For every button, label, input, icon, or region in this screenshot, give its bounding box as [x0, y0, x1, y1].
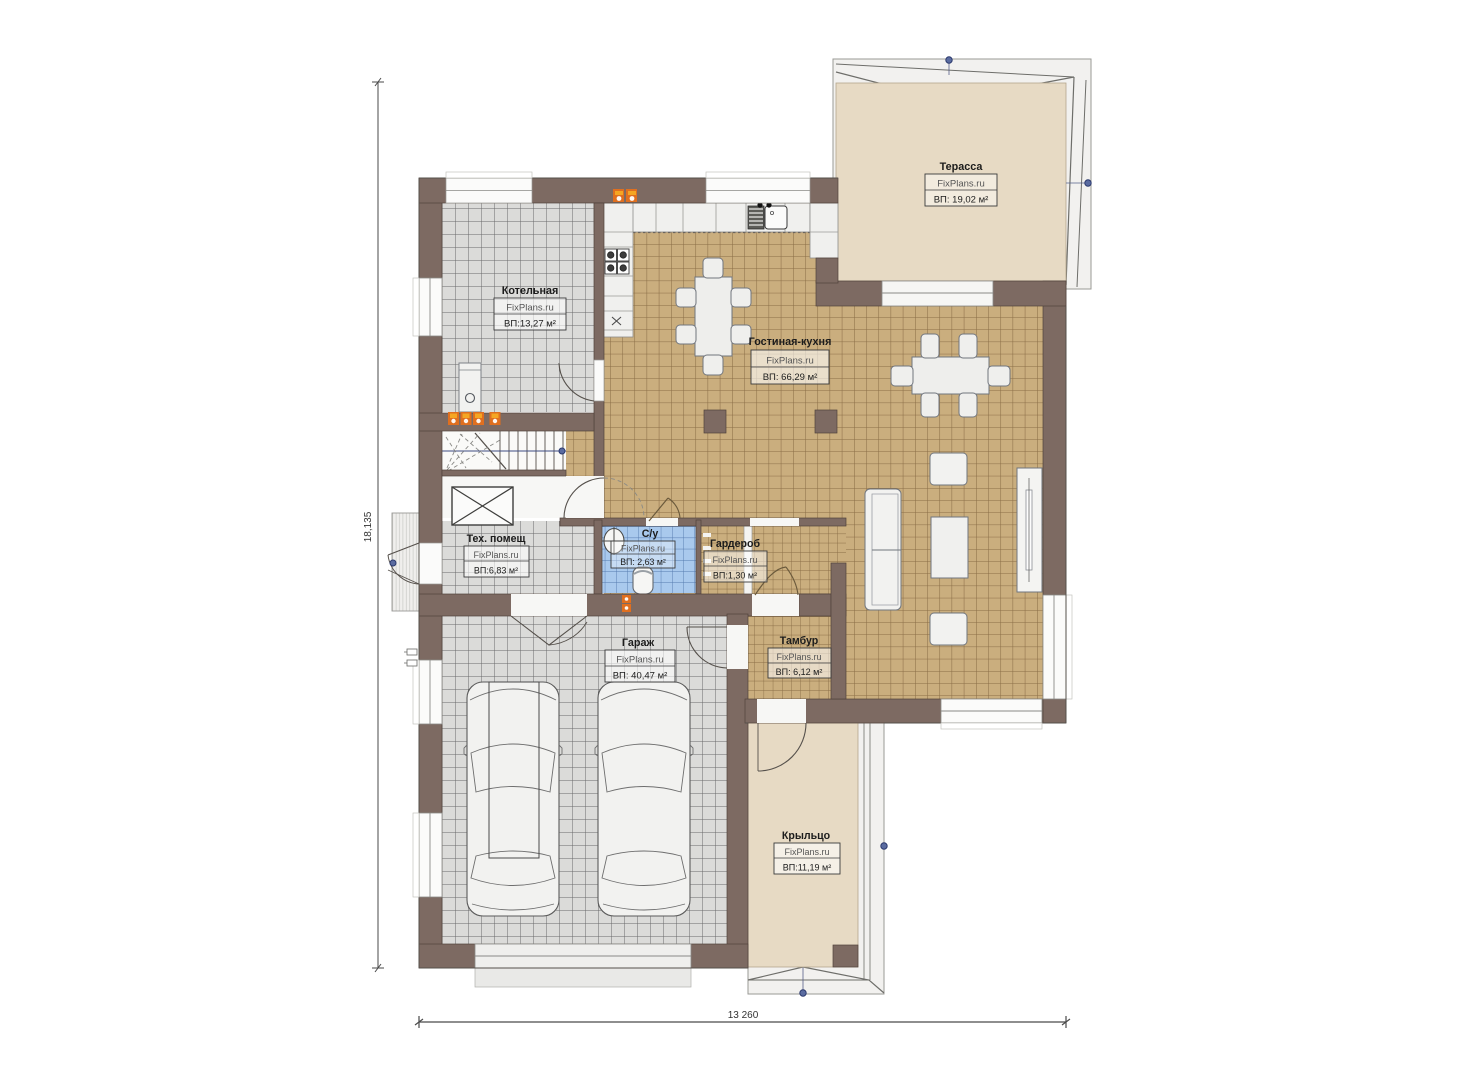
svg-text:ВП: 6,12 м²: ВП: 6,12 м²	[776, 667, 823, 677]
svg-text:ВП: 2,63 м²: ВП: 2,63 м²	[620, 557, 666, 567]
svg-text:FixPlans.ru: FixPlans.ru	[766, 356, 814, 367]
svg-text:FixPlans.ru: FixPlans.ru	[473, 550, 518, 560]
svg-text:Гостиная-кухня: Гостиная-кухня	[749, 336, 832, 348]
svg-text:FixPlans.ru: FixPlans.ru	[776, 652, 821, 662]
svg-text:FixPlans.ru: FixPlans.ru	[621, 544, 665, 554]
svg-text:FixPlans.ru: FixPlans.ru	[506, 303, 554, 314]
svg-text:ВП:6,83 м²: ВП:6,83 м²	[474, 566, 518, 576]
svg-text:Терасса: Терасса	[940, 161, 984, 173]
svg-text:ВП:1,30 м²: ВП:1,30 м²	[713, 571, 757, 581]
svg-text:FixPlans.ru: FixPlans.ru	[784, 847, 829, 857]
svg-text:Крыльцо: Крыльцо	[782, 830, 831, 842]
svg-text:ВП:13,27 м²: ВП:13,27 м²	[504, 319, 556, 330]
svg-text:FixPlans.ru: FixPlans.ru	[937, 179, 985, 190]
svg-text:13 260: 13 260	[728, 1010, 759, 1021]
svg-text:Гардероб: Гардероб	[710, 538, 761, 550]
svg-text:FixPlans.ru: FixPlans.ru	[616, 655, 664, 666]
svg-text:ВП: 40,47 м²: ВП: 40,47 м²	[613, 671, 668, 682]
svg-text:ВП: 19,02 м²: ВП: 19,02 м²	[934, 195, 989, 206]
svg-text:ВП: 66,29 м²: ВП: 66,29 м²	[763, 372, 818, 383]
svg-text:FixPlans.ru: FixPlans.ru	[712, 555, 757, 565]
svg-text:С/у: С/у	[642, 528, 659, 540]
svg-text:ВП:11,19 м²: ВП:11,19 м²	[783, 863, 832, 873]
svg-text:Тамбур: Тамбур	[780, 635, 819, 647]
svg-text:18,135: 18,135	[363, 511, 374, 542]
svg-text:Котельная: Котельная	[502, 285, 559, 297]
svg-text:Тех. помещ: Тех. помещ	[467, 533, 526, 545]
svg-text:Гараж: Гараж	[622, 637, 655, 649]
